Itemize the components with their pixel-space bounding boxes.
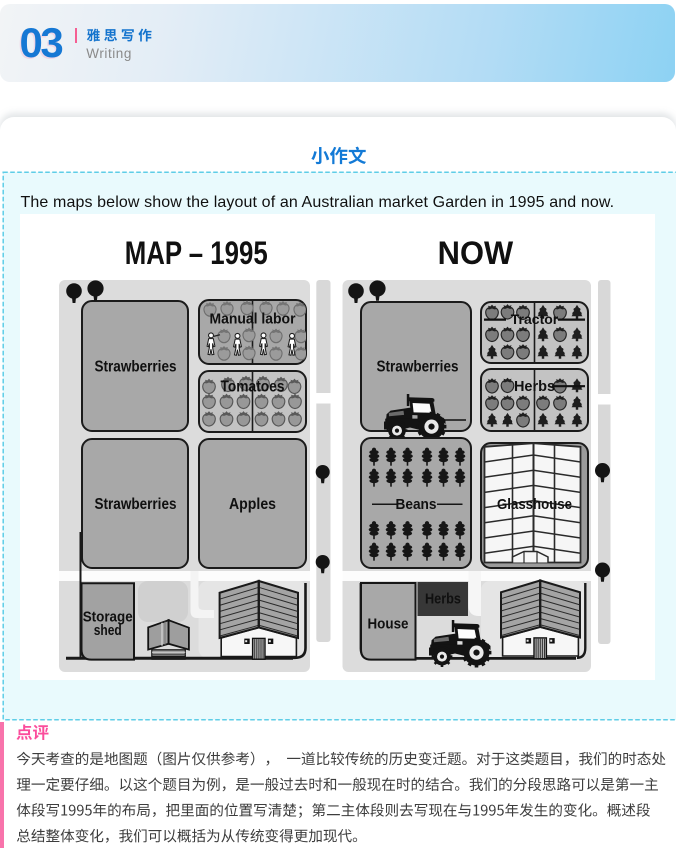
svg-text:NOW: NOW bbox=[438, 235, 514, 271]
svg-text:Tractor: Tractor bbox=[511, 311, 559, 327]
svg-text:Beans: Beans bbox=[396, 496, 437, 513]
svg-text:Glasshouse: Glasshouse bbox=[497, 496, 572, 513]
svg-text:Manual labor: Manual labor bbox=[210, 311, 296, 328]
svg-text:Apples: Apples bbox=[229, 496, 276, 513]
svg-text:Strawberries: Strawberries bbox=[377, 359, 459, 376]
svg-text:Strawberries: Strawberries bbox=[95, 496, 177, 513]
svg-text:Herbs: Herbs bbox=[425, 592, 461, 608]
svg-text:House: House bbox=[368, 617, 409, 633]
svg-text:MAP – 1995: MAP – 1995 bbox=[125, 235, 268, 271]
svg-text:shed: shed bbox=[94, 622, 122, 639]
svg-text:Tomatoes: Tomatoes bbox=[221, 379, 285, 396]
svg-text:Herbs: Herbs bbox=[514, 379, 555, 395]
svg-text:Strawberries: Strawberries bbox=[95, 359, 177, 376]
